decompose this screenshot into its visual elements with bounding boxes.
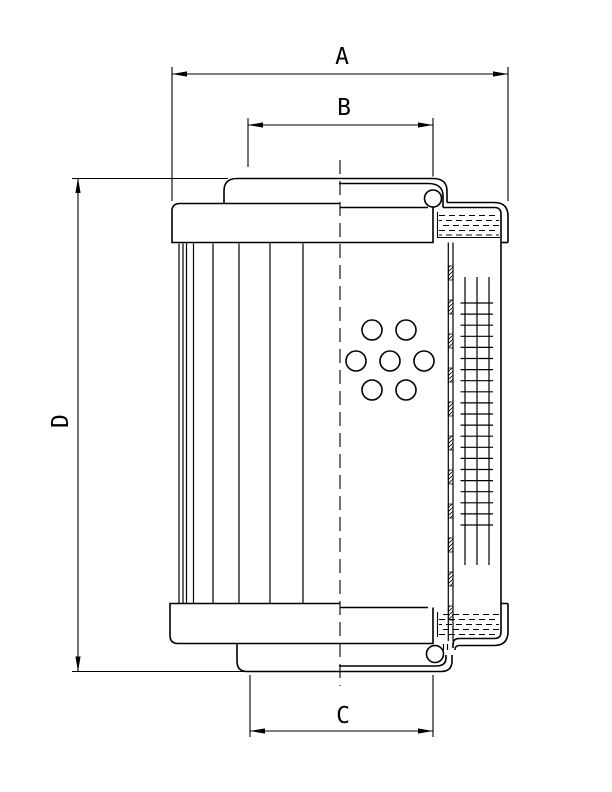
bottom-end-cap [170, 604, 433, 644]
seam-hatch-block [448, 368, 453, 382]
inner-tube-bottom-outline [237, 644, 452, 672]
bypass-hole [396, 380, 416, 400]
seam-hatch-block [448, 606, 453, 620]
dimension-b-arrow-left-icon [248, 122, 263, 127]
seam-hatch-block [448, 300, 453, 314]
dimension-a-arrow-left-icon [172, 71, 187, 76]
top-end-cap-outline [172, 204, 433, 243]
bypass-hole [396, 320, 416, 340]
filter-element-drawing: A B C D [0, 0, 612, 792]
bypass-hole [380, 351, 400, 371]
outer-shell-top-flange [443, 203, 508, 243]
shell-bottom-flange-outer [455, 604, 508, 651]
dimension-c: C [250, 675, 433, 737]
seam-hatch-block [448, 572, 453, 586]
dimension-b-label: B [337, 95, 351, 121]
dimension-d-arrow-bottom-icon [75, 657, 80, 672]
seam-hatch-blocks [448, 266, 453, 620]
outer-shell-bottom-flange [453, 604, 508, 651]
bypass-hole [346, 351, 366, 371]
seam-hatch-block [448, 470, 453, 484]
seam-hatch-block [448, 402, 453, 416]
seam-hatch-block [448, 334, 453, 348]
dimension-b-arrow-right-icon [418, 122, 433, 127]
o-ring-top-seal [425, 190, 442, 207]
o-ring-bottom-seal [427, 646, 444, 663]
bypass-hole [414, 351, 434, 371]
bypass-hole [362, 320, 382, 340]
dimension-d-label: D [48, 414, 74, 428]
dimension-a-label: A [335, 44, 349, 70]
bypass-holes [346, 320, 434, 400]
bottom-end-cap-outline [170, 604, 433, 644]
inner-tube-top-outline [224, 179, 447, 204]
inner-tube-bottom [237, 644, 452, 672]
drawing-page: A B C D [0, 0, 612, 792]
support-mesh [461, 277, 494, 565]
shell-bottom-flange-inner [453, 604, 501, 649]
dimension-c-arrow-right-icon [418, 728, 433, 733]
bypass-hole [362, 380, 382, 400]
dimension-c-label: C [336, 703, 350, 729]
dimension-d-arrow-top-icon [75, 178, 80, 193]
pleat-lines [179, 244, 303, 604]
seam-hatch-block [448, 504, 453, 518]
seam-hatch-block [448, 266, 453, 280]
top-end-cap [172, 204, 433, 243]
seam-hatch-block [448, 538, 453, 552]
dimension-a: A [172, 44, 508, 201]
dimension-c-arrow-left-icon [250, 728, 265, 733]
dimension-d: D [48, 178, 246, 672]
seam-hatch-block [448, 436, 453, 450]
dimension-a-arrow-right-icon [493, 71, 508, 76]
